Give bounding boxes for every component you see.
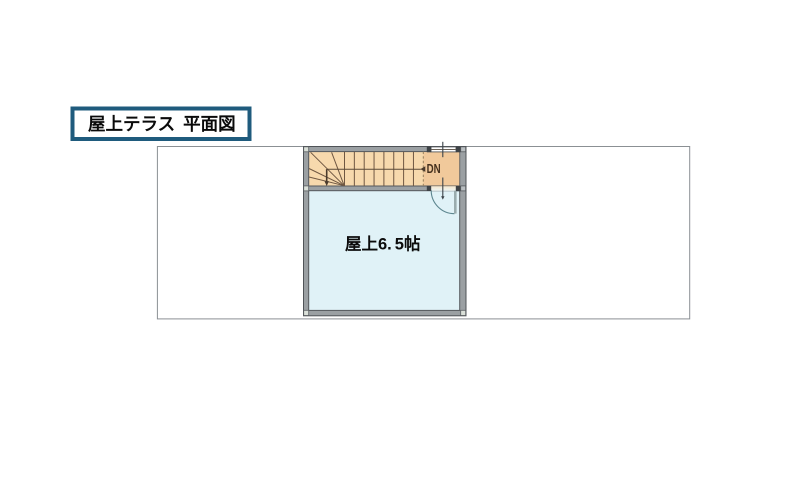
svg-text:屋上6.5帖: 屋上6.5帖 xyxy=(345,234,421,254)
svg-text:DN: DN xyxy=(427,162,441,176)
svg-text:屋上テラス平面図: 屋上テラス平面図 xyxy=(88,114,236,134)
